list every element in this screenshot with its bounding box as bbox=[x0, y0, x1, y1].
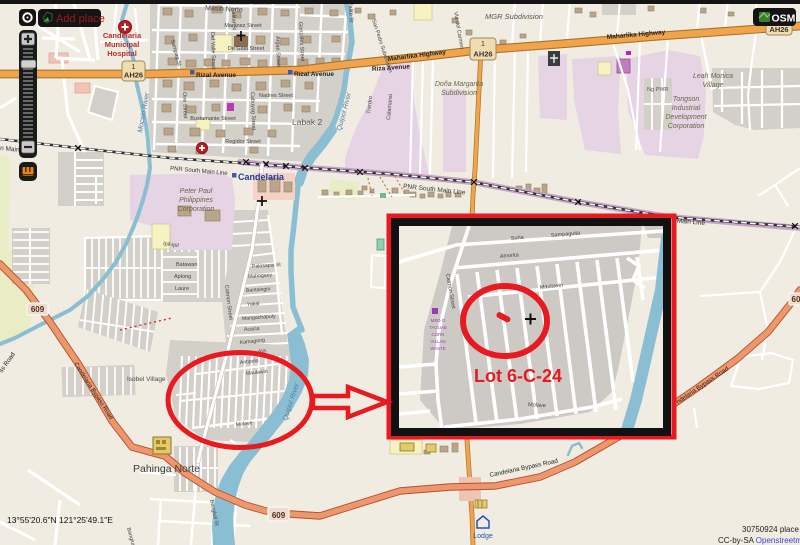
svg-text:De Gala Street: De Gala Street bbox=[228, 46, 265, 52]
svg-text:Rizal Avenue: Rizal Avenue bbox=[196, 72, 236, 79]
svg-text:AH26: AH26 bbox=[769, 25, 788, 34]
svg-text:Hospital: Hospital bbox=[107, 49, 137, 58]
svg-text:TAGUAB: TAGUAB bbox=[429, 325, 447, 330]
svg-text:Candelaria: Candelaria bbox=[103, 31, 142, 40]
svg-text:Lodge: Lodge bbox=[473, 533, 493, 540]
svg-text:Add place: Add place bbox=[56, 13, 105, 25]
svg-text:Doña Margarita: Doña Margarita bbox=[435, 81, 483, 88]
svg-text:Corporation: Corporation bbox=[668, 123, 705, 130]
svg-text:AH26: AH26 bbox=[473, 50, 492, 59]
svg-text:Village: Village bbox=[703, 82, 724, 89]
svg-text:609: 609 bbox=[272, 511, 286, 520]
svg-text:Rizal Avenue: Rizal Avenue bbox=[294, 71, 334, 78]
svg-text:Tongson: Tongson bbox=[673, 96, 700, 103]
svg-text:30750924 place: 30750924 place bbox=[742, 525, 799, 534]
svg-text:Aplong: Aplong bbox=[174, 274, 191, 280]
svg-text:Argao Street: Argao Street bbox=[274, 36, 281, 68]
svg-text:Nadres Street: Nadres Street bbox=[259, 93, 293, 99]
svg-text:Pahinga Norte: Pahinga Norte bbox=[133, 463, 200, 475]
svg-text:Laure: Laure bbox=[175, 286, 189, 292]
svg-text:CC-by-SA Openstreetmap.o: CC-by-SA Openstreetmap.o bbox=[718, 536, 800, 545]
svg-text:Corporation: Corporation bbox=[178, 206, 215, 213]
svg-text:One Street: One Street bbox=[181, 92, 188, 119]
svg-text:Development: Development bbox=[665, 114, 707, 121]
svg-text:Molave: Molave bbox=[528, 402, 546, 409]
svg-text:Bustamante Street: Bustamante Street bbox=[190, 116, 236, 122]
svg-text:Regidor Street: Regidor Street bbox=[225, 139, 261, 145]
svg-text:Leah Monica: Leah Monica bbox=[693, 73, 733, 80]
svg-text:Suha: Suha bbox=[511, 235, 525, 242]
svg-text:Isobel Village: Isobel Village bbox=[127, 376, 166, 383]
svg-text:1: 1 bbox=[481, 41, 485, 48]
svg-text:Acacia: Acacia bbox=[244, 326, 260, 333]
svg-text:Labak 2: Labak 2 bbox=[292, 117, 323, 127]
svg-text:Palito St: Palito St bbox=[347, 2, 354, 23]
svg-text:CORN: CORN bbox=[432, 332, 445, 337]
svg-text:Philippines: Philippines bbox=[179, 197, 213, 204]
svg-text:MED-O: MED-O bbox=[431, 318, 446, 323]
svg-text:AH26: AH26 bbox=[124, 71, 143, 80]
svg-text:Ng PWR: Ng PWR bbox=[647, 87, 668, 93]
svg-text:WASTE: WASTE bbox=[430, 346, 446, 351]
svg-text:Lot 6-C-24: Lot 6-C-24 bbox=[474, 366, 562, 386]
svg-text:Municipal: Municipal bbox=[105, 40, 140, 49]
svg-text:Industrial: Industrial bbox=[672, 105, 701, 112]
svg-text:Candelaria: Candelaria bbox=[238, 172, 285, 182]
svg-text:Subdivision: Subdivision bbox=[441, 90, 477, 97]
svg-text:Yakal: Yakal bbox=[247, 301, 260, 308]
svg-text:Batawan: Batawan bbox=[176, 262, 197, 268]
svg-text:60: 60 bbox=[792, 295, 800, 304]
svg-text:VILLAN: VILLAN bbox=[430, 339, 445, 344]
svg-text:Martinez Street: Martinez Street bbox=[224, 23, 262, 29]
svg-text:13°55'20.6"N 121°25'49.1"E: 13°55'20.6"N 121°25'49.1"E bbox=[7, 515, 113, 525]
svg-text:MGR Subdivision: MGR Subdivision bbox=[485, 12, 543, 21]
svg-text:609: 609 bbox=[31, 305, 45, 314]
svg-text:Salitar St: Salitar St bbox=[230, 8, 237, 31]
svg-text:Peter Paul: Peter Paul bbox=[180, 188, 213, 195]
svg-text:OSM: OSM bbox=[772, 13, 796, 25]
